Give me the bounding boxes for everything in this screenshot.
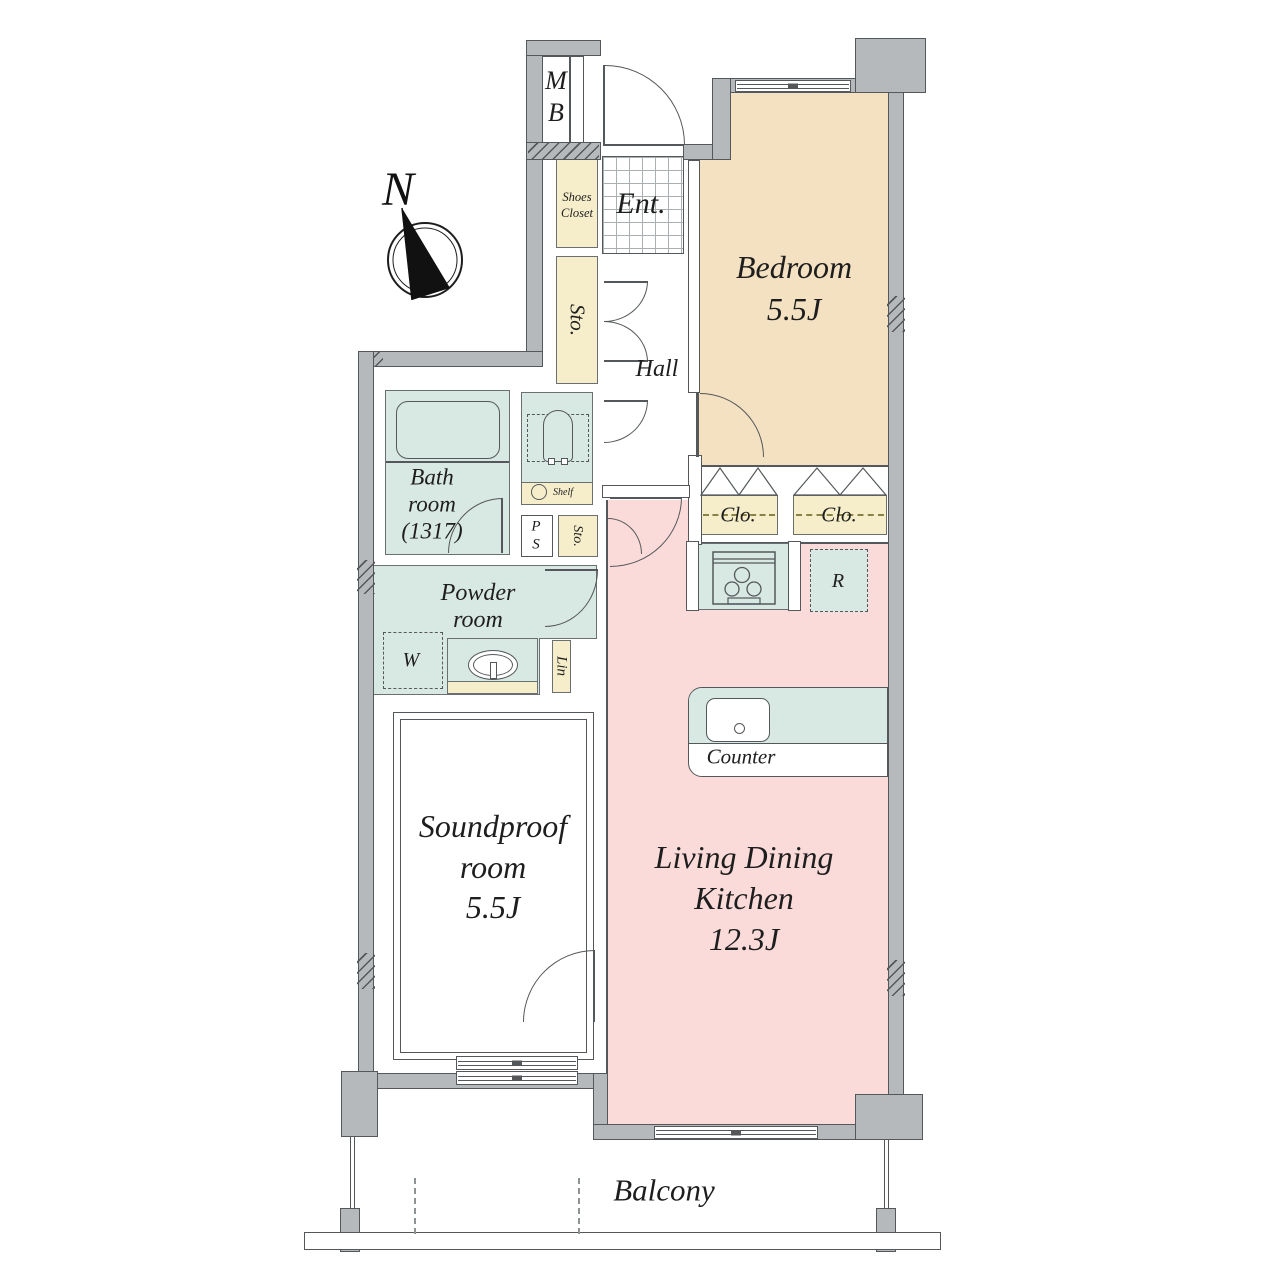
entrance-door-arc (605, 65, 685, 145)
stove-icon (712, 551, 776, 605)
balcony-divider-dash-right (578, 1178, 580, 1234)
bedroom-size-label: 5.5J (767, 293, 821, 325)
toilet-tank-right (561, 458, 568, 465)
counter-sink-icon (706, 698, 770, 742)
ldk-area-left (607, 500, 697, 1125)
soundproof-size-label: 5.5J (466, 891, 520, 923)
bathroom-label-3: (1317) (401, 520, 462, 543)
washer-label: W (403, 650, 420, 670)
shoes-closet-label-2: Closet (561, 207, 593, 220)
balcony-rail-left (350, 1137, 355, 1210)
soundproof-label-1: Soundproof (419, 810, 567, 842)
soundproof-window-inner (456, 1071, 578, 1085)
meter-box-label-b: B (548, 100, 564, 126)
bathtub-icon (396, 401, 500, 459)
counter-label: Counter (707, 747, 776, 768)
wall-bedroom-step (712, 78, 731, 160)
bedroom-area-upper (728, 92, 888, 161)
ldk-size-label: 12.3J (709, 923, 779, 955)
balcony-label: Balcony (613, 1175, 715, 1206)
powder-room-label-2: room (453, 608, 503, 632)
wall-break-hatch-mb (528, 143, 599, 159)
closet-right-folding-door-icon (793, 466, 887, 496)
soundproof-label-2: room (460, 851, 526, 883)
ldk-label-2: Kitchen (694, 882, 794, 914)
floor-plan: N M B Ent. Shoes Closet Sto. Hall Bedroo… (0, 0, 1280, 1280)
hall-storage-door-arc-top (604, 281, 648, 322)
small-storage-label: Sto. (570, 525, 584, 546)
ldk-label-1: Living Dining (655, 841, 834, 873)
compass-north-label: N (381, 163, 417, 216)
shelf-pot-icon (531, 484, 547, 500)
hall-label: Hall (636, 357, 679, 381)
north-compass-icon: N (370, 155, 470, 305)
wall-break-hatch-right-lower (887, 960, 905, 996)
wall-step-bottom (593, 1073, 608, 1127)
balcony-slab (304, 1232, 941, 1250)
vanity-faucet-icon (490, 662, 497, 679)
pipe-space-label-s: S (532, 538, 540, 553)
counter-faucet-icon (734, 723, 745, 734)
closet-left-folding-door-icon (700, 466, 778, 496)
wall-stove-left (686, 541, 699, 611)
ldk-area-main (697, 543, 888, 1125)
entrance-label: Ent. (616, 189, 665, 219)
toilet-icon (543, 410, 573, 462)
pipe-space-label-p: P (531, 520, 540, 535)
bedroom-label: Bedroom (736, 251, 852, 283)
wall-step-upper-left (358, 351, 543, 367)
soundproof-window-outer (456, 1056, 578, 1070)
bathroom-tub-divider (386, 461, 509, 463)
wall-break-hatch-left-lower (357, 953, 375, 989)
balcony-rail-right (884, 1140, 889, 1210)
ldk-left-outline (606, 500, 608, 1125)
toilet-tank-left (548, 458, 555, 465)
vanity-front-strip (448, 681, 537, 693)
linen-label: Lin (554, 656, 569, 676)
wall-mb-top (526, 40, 601, 56)
wall-break-hatch-left-upper (357, 560, 375, 594)
pillar-top-right (855, 38, 926, 93)
closet-right-label: Clo. (821, 505, 857, 526)
meter-box-label-m: M (545, 68, 567, 94)
wall-hall-bedroom (688, 160, 700, 393)
bedroom-door-leaf (696, 393, 699, 457)
bathroom-label-2: room (408, 493, 456, 516)
wall-top-left-vertical (526, 40, 543, 356)
toilet-shelf-label: Shelf (553, 488, 573, 498)
hall-storage-label: Sto. (567, 304, 588, 336)
meter-box-divider (569, 57, 571, 142)
powder-room-label-1: Powder (441, 581, 516, 605)
pillar-bottom-right (855, 1094, 923, 1140)
refrigerator-label: R (832, 571, 844, 591)
ldk-window (654, 1126, 818, 1139)
pillar-bottom-left (341, 1071, 378, 1137)
wall-break-hatch-right-upper (887, 296, 905, 332)
bathroom-label-1: Bath (410, 466, 453, 489)
closet-left-label: Clo. (720, 505, 756, 526)
balcony-divider-dash-left (414, 1178, 416, 1234)
shoes-closet-label-1: Shoes (562, 191, 591, 204)
toilet-door-arc (604, 400, 648, 443)
bedroom-window (735, 80, 851, 92)
wall-stove-right (788, 541, 801, 611)
